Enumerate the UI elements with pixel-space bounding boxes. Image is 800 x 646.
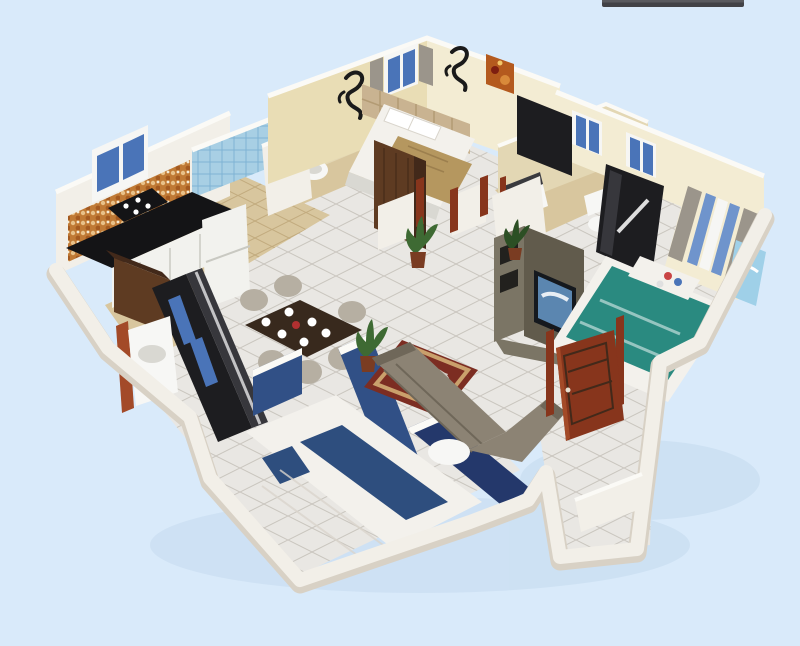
master-window-pane-left <box>388 55 400 93</box>
door-handle <box>566 388 571 393</box>
right-window1-pane2 <box>589 120 599 154</box>
plate <box>300 338 309 347</box>
centerpiece <box>292 321 300 329</box>
floor-plan-render <box>0 0 800 646</box>
right-window1-pane <box>576 115 586 149</box>
door-post-3 <box>480 175 488 217</box>
plate <box>322 329 331 338</box>
master-window-pane-right <box>403 49 415 87</box>
ottoman <box>428 439 470 465</box>
door-post-2 <box>450 187 458 233</box>
door-frame-left <box>546 329 554 417</box>
bed-toy-1 <box>664 272 672 280</box>
plate <box>308 318 317 327</box>
right-window2-pane2 <box>643 142 653 176</box>
master-curtain-right <box>419 44 433 86</box>
bed-toy-3 <box>657 281 664 288</box>
plate <box>262 318 271 327</box>
plate <box>285 308 294 317</box>
window-chrome-highlight <box>602 0 744 3</box>
utility-sink-bowl <box>138 345 166 363</box>
right-window2-pane <box>630 137 640 171</box>
plate <box>278 330 287 339</box>
bed-toy-2 <box>674 278 682 286</box>
